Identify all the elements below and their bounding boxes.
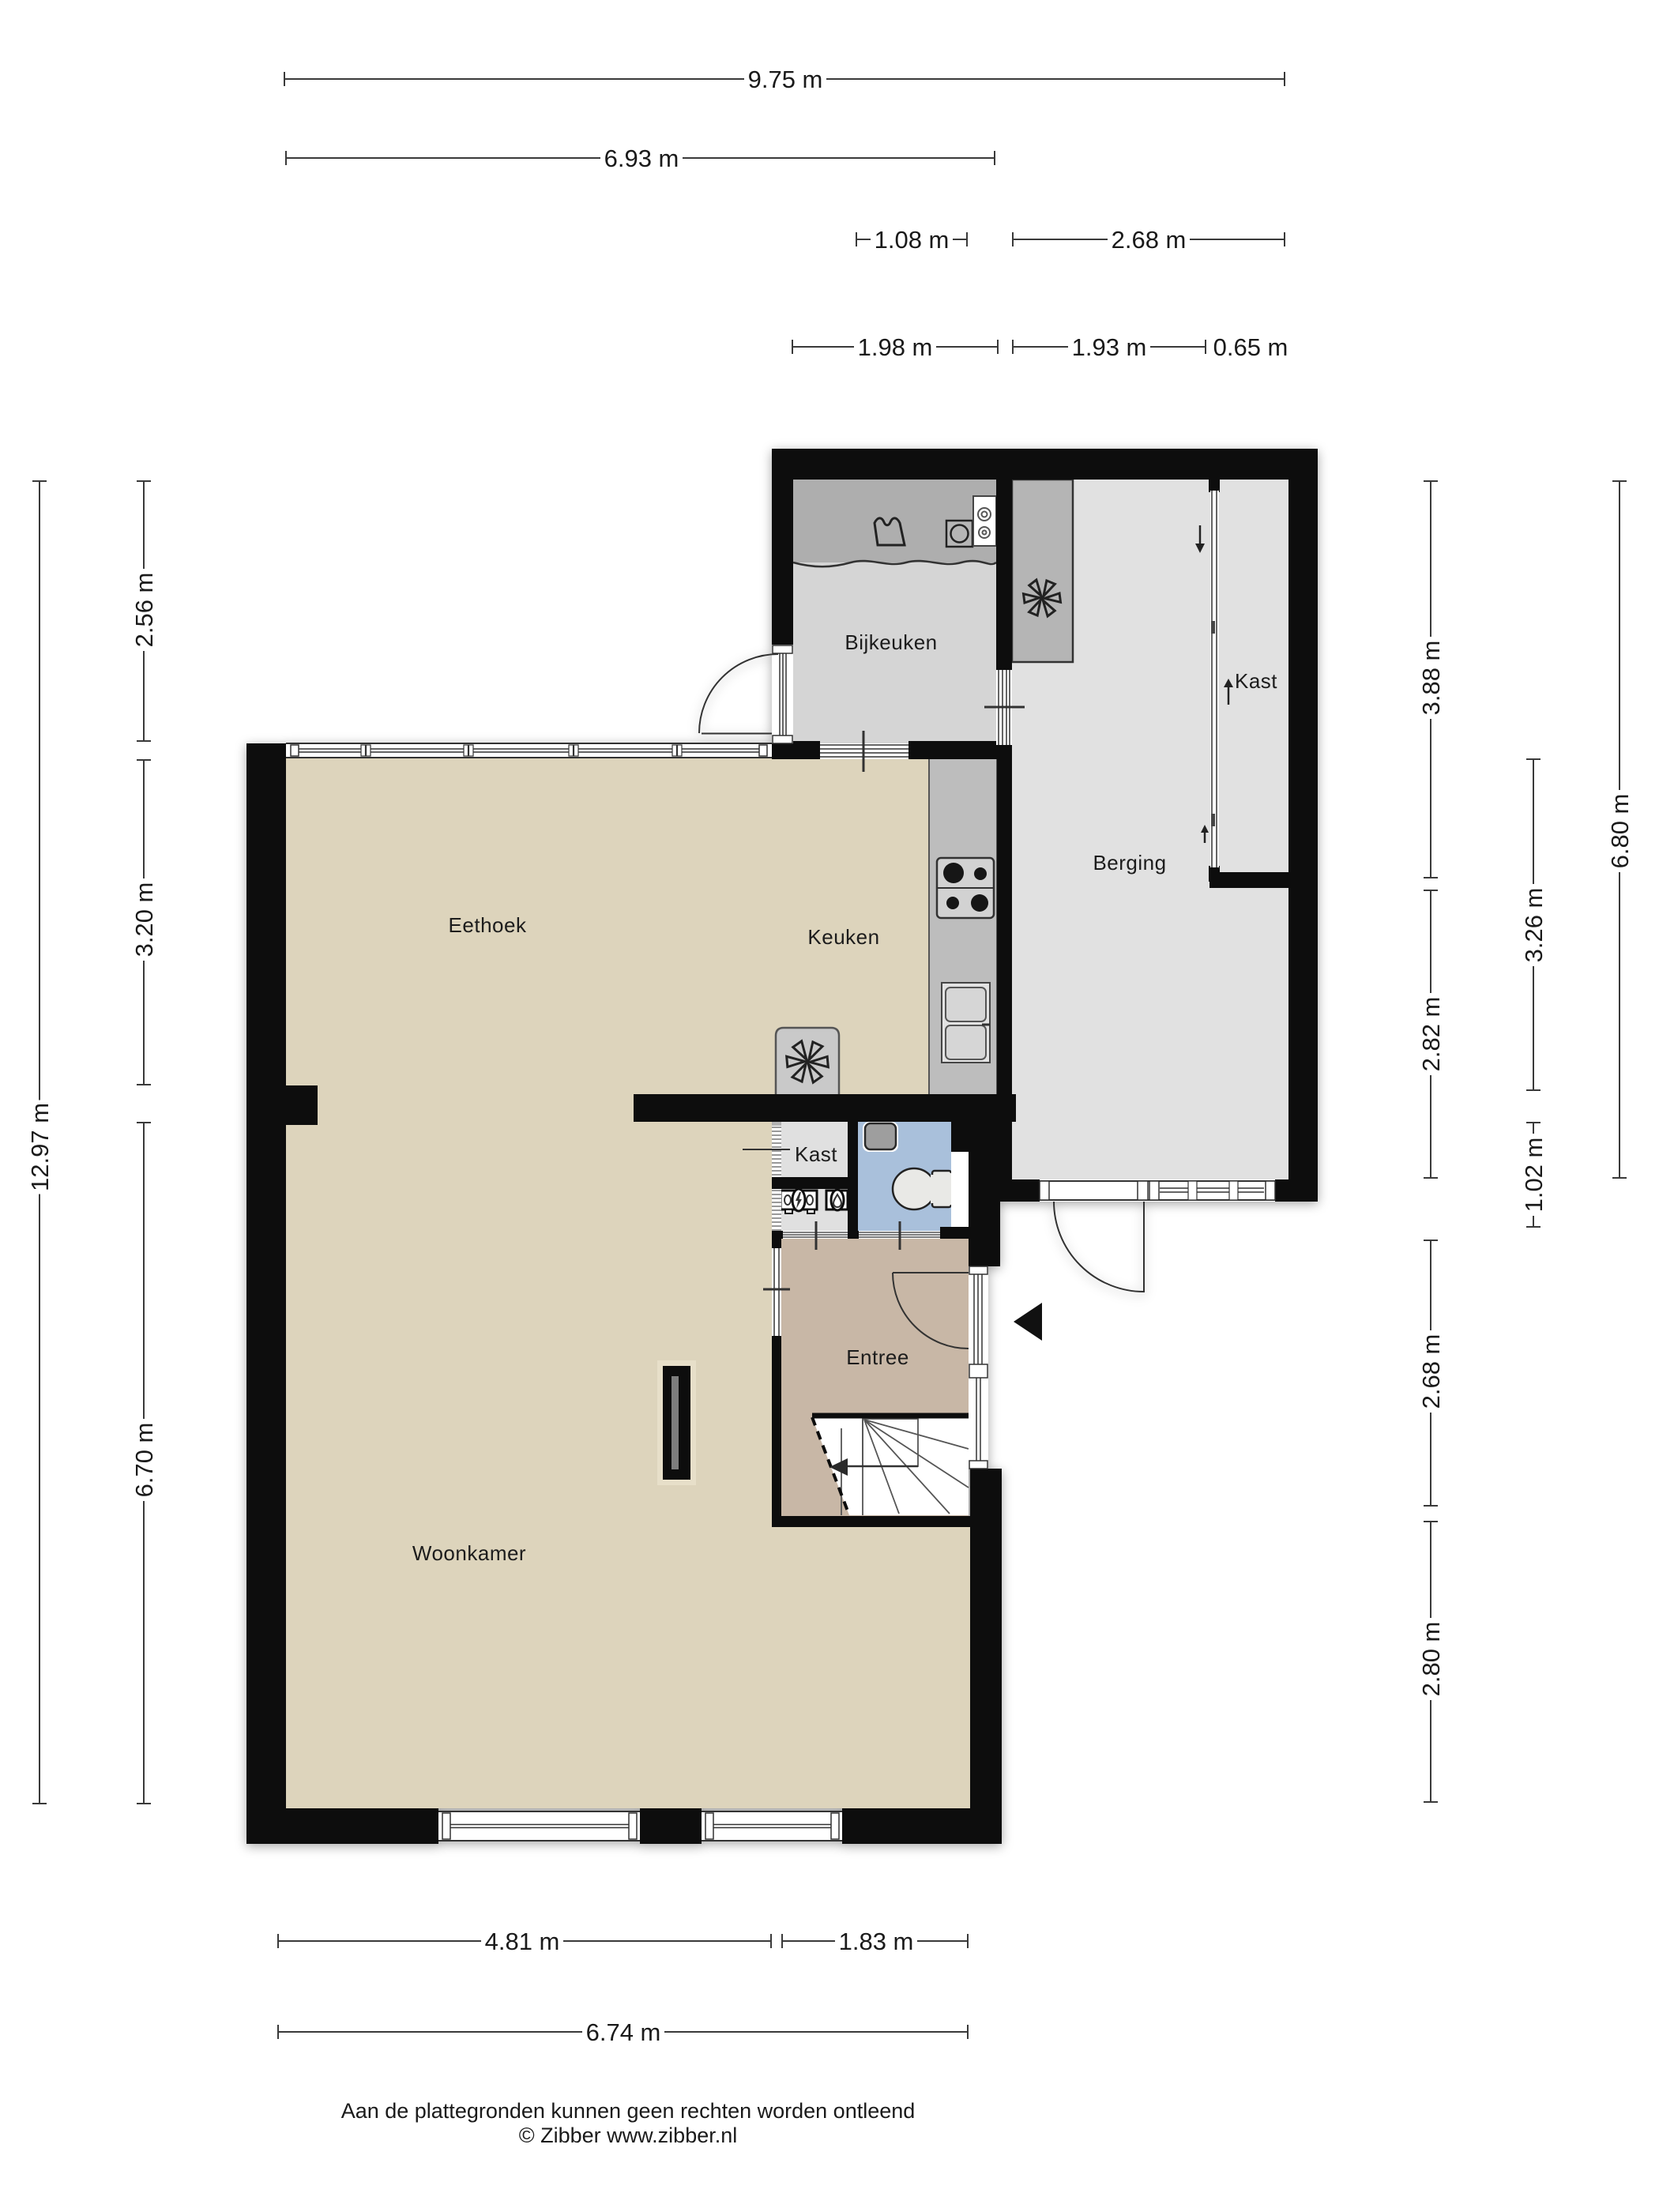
svg-text:2.68 m: 2.68 m [1112,226,1187,254]
svg-text:Eethoek: Eethoek [449,913,527,937]
svg-text:Keuken: Keuken [807,925,879,949]
svg-text:© Zibber www.zibber.nl: © Zibber www.zibber.nl [519,2124,738,2147]
svg-text:Berging: Berging [1093,851,1166,875]
svg-text:1.08 m: 1.08 m [875,226,950,254]
svg-text:Kast: Kast [795,1142,837,1166]
svg-text:Entree: Entree [846,1345,909,1369]
svg-text:1.98 m: 1.98 m [858,333,933,361]
svg-text:1.02 m: 1.02 m [1520,1138,1548,1213]
svg-text:2.56 m: 2.56 m [130,573,158,648]
svg-text:2.80 m: 2.80 m [1417,1622,1445,1697]
svg-text:6.93 m: 6.93 m [604,145,679,172]
svg-text:Kast: Kast [1235,669,1277,693]
svg-text:6.80 m: 6.80 m [1606,794,1634,869]
svg-text:6.74 m: 6.74 m [586,2018,661,2046]
svg-text:12.97 m: 12.97 m [26,1103,54,1191]
svg-text:3.26 m: 3.26 m [1520,888,1548,963]
svg-text:6.70 m: 6.70 m [130,1423,158,1498]
svg-text:Bijkeuken: Bijkeuken [845,630,937,654]
svg-text:9.75 m: 9.75 m [748,66,823,93]
svg-text:3.88 m: 3.88 m [1417,641,1445,716]
svg-text:1.93 m: 1.93 m [1072,333,1147,361]
svg-text:4.81 m: 4.81 m [485,1928,560,1955]
svg-text:Woonkamer: Woonkamer [412,1541,526,1565]
svg-text:1.83 m: 1.83 m [839,1928,914,1955]
svg-text:0.65 m: 0.65 m [1213,333,1288,361]
svg-text:2.82 m: 2.82 m [1417,997,1445,1072]
svg-text:3.20 m: 3.20 m [130,882,158,957]
svg-text:2.68 m: 2.68 m [1417,1334,1445,1409]
svg-text:Aan de plattegronden kunnen ge: Aan de plattegronden kunnen geen rechten… [341,2099,916,2123]
